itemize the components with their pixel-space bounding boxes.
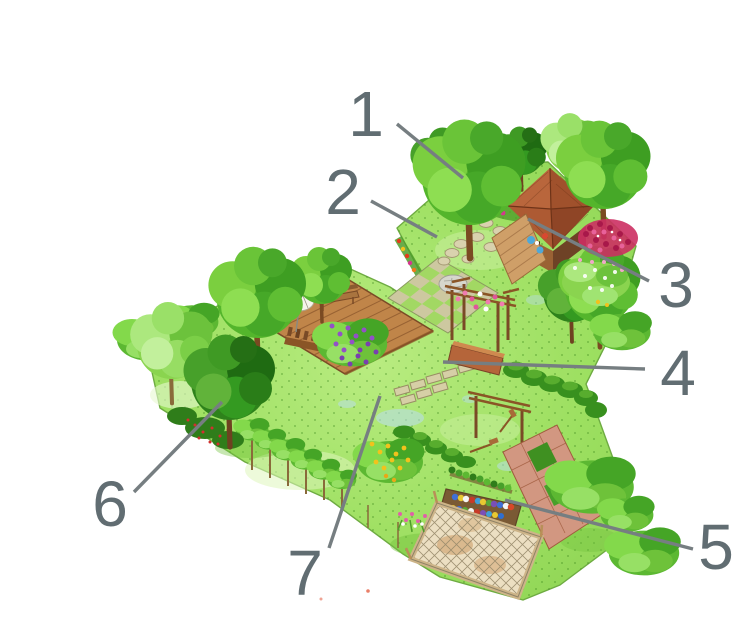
callout-label-2: 2: [325, 156, 361, 228]
callout-label-4: 4: [660, 337, 696, 409]
callout-label-1: 1: [348, 78, 384, 150]
porch-chair-blue: [527, 236, 535, 244]
garden-illustration: 1 2 3 4 5 6 7: [0, 0, 735, 624]
porch-item-red: [542, 233, 548, 239]
callout-label-7: 7: [287, 537, 323, 609]
porch-chair-blue: [537, 247, 544, 254]
callout-label-5: 5: [698, 511, 734, 583]
callout-label-6: 6: [92, 468, 128, 540]
climbing-rose-shed: [578, 219, 638, 257]
callout-label-3: 3: [658, 249, 694, 321]
garden-plan-figure: 1 2 3 4 5 6 7: [0, 0, 735, 624]
